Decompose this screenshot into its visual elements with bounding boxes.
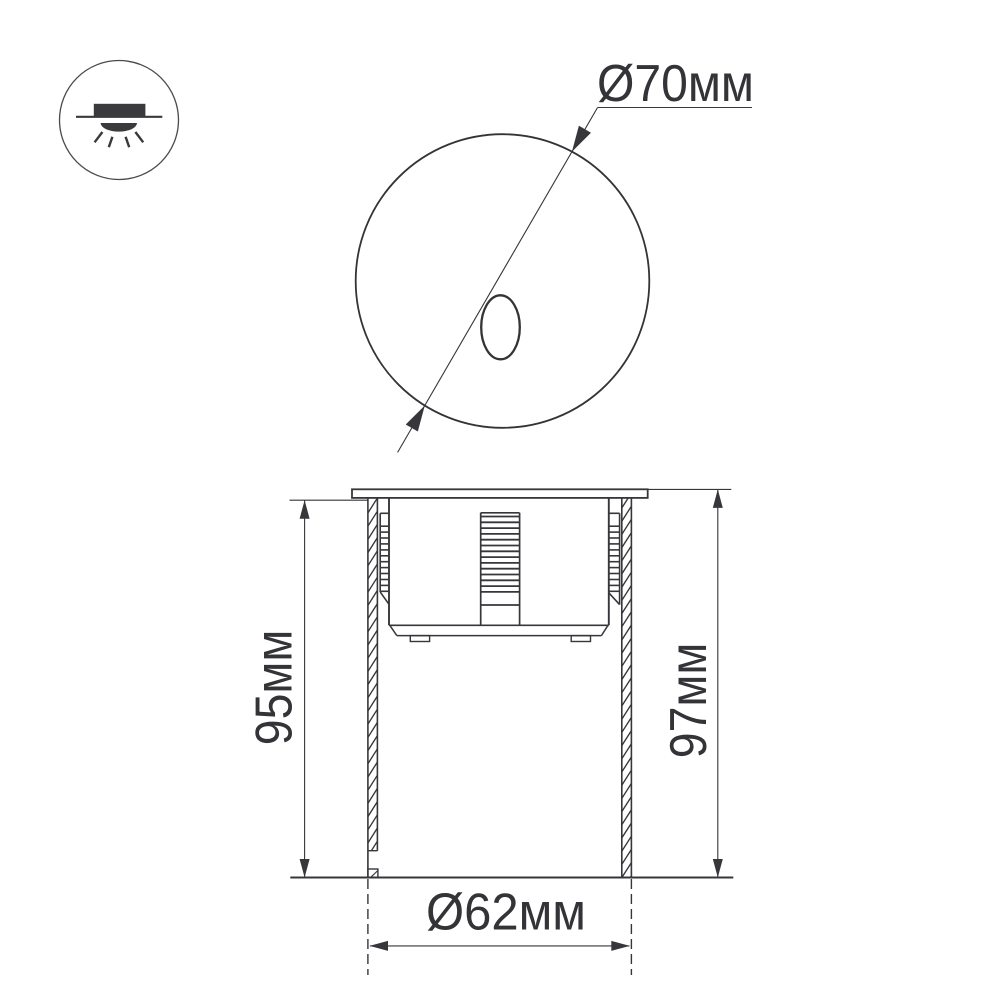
- svg-text:Ø70мм: Ø70мм: [597, 55, 754, 113]
- svg-text:97мм: 97мм: [660, 643, 718, 759]
- svg-text:95мм: 95мм: [245, 630, 303, 746]
- svg-text:Ø62мм: Ø62мм: [426, 884, 586, 942]
